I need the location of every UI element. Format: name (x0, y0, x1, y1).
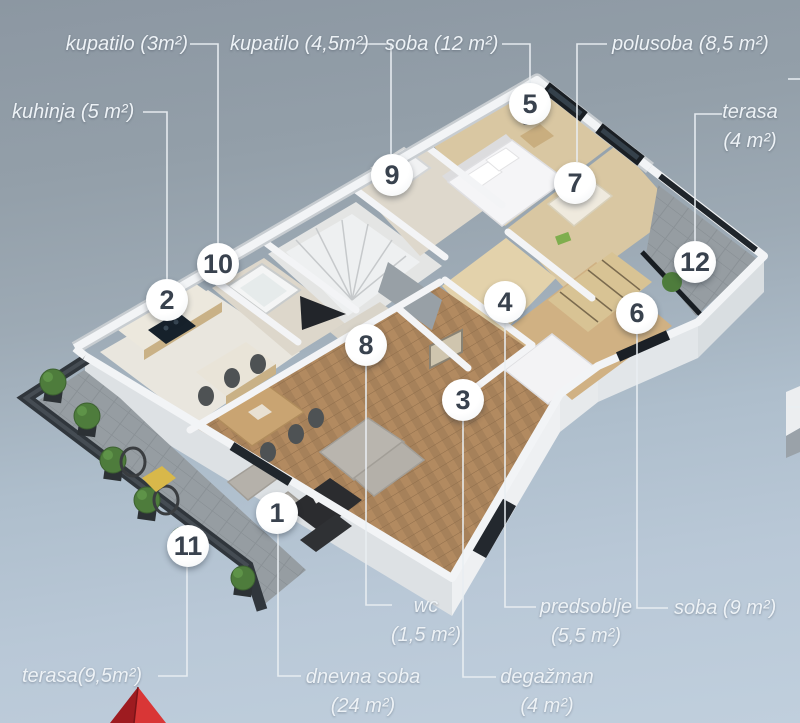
leader-soba-12 (502, 44, 530, 83)
leader-kupatilo-45 (362, 44, 391, 154)
leader-kupatilo-3 (190, 44, 218, 243)
floor-plan-image: kupatilo (3m²)kupatilo (4,5m²)soba (12 m… (0, 0, 800, 723)
lamp (521, 115, 531, 125)
terrace-4m-plant (662, 272, 682, 292)
north-arrow (110, 687, 166, 723)
leader-terasa-95 (158, 567, 187, 676)
parapet-fragment (786, 386, 800, 436)
floor-plan-render (0, 0, 800, 723)
leader-kuhinja-5 (143, 112, 167, 279)
